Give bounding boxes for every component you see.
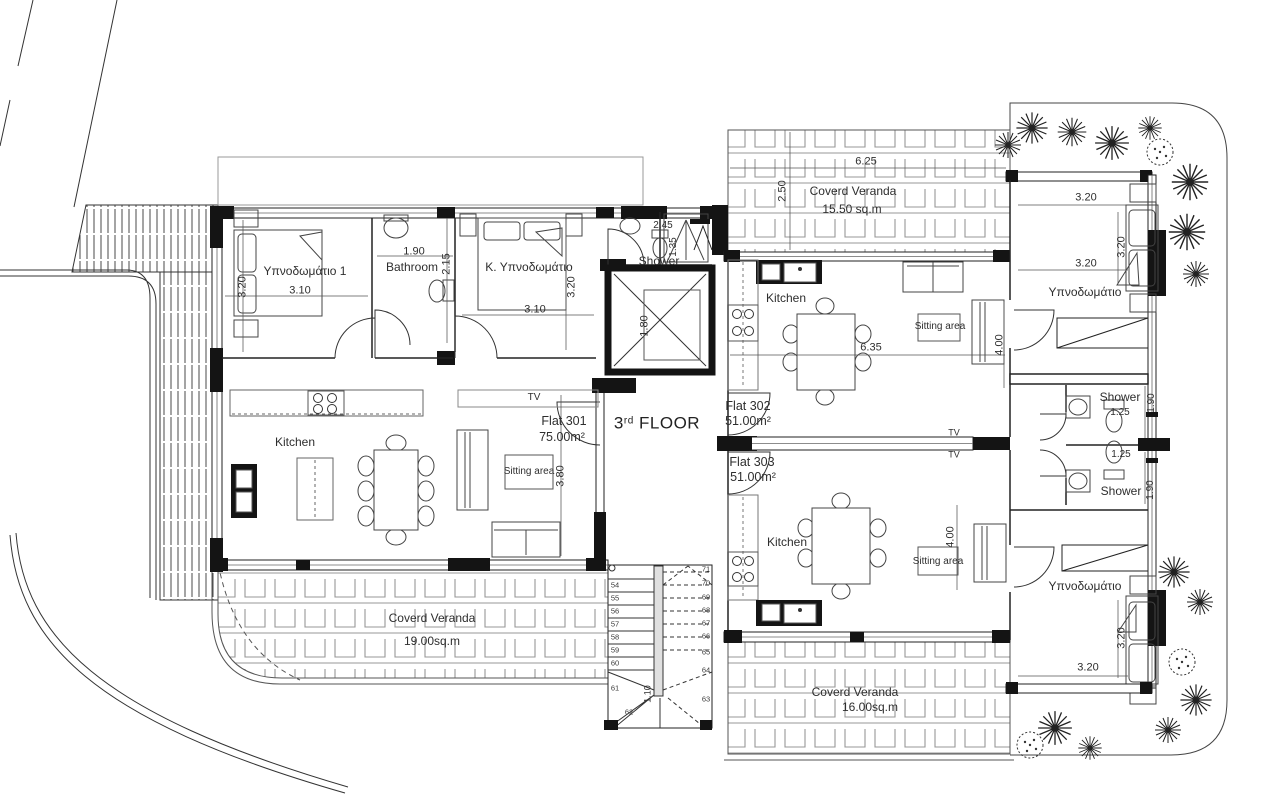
dim-flat302-shower-height: 1.90 <box>1147 393 1157 412</box>
label-flat302-bedroom: Υπνοδωμάτιο <box>1049 286 1122 298</box>
dim-flat301-living-height: 3.80 <box>556 465 567 486</box>
stair-step-number: 61 <box>611 684 619 692</box>
stair-step-number: 67 <box>702 619 710 627</box>
label-flat301-master-bedroom: Κ. Υπνοδωμάτιο <box>485 261 572 273</box>
label-flat302-sitting-area: Sitting area <box>915 322 966 332</box>
stair-step-number: 69 <box>702 593 710 601</box>
dim-flat301-shower-width: 2.45 <box>653 221 672 231</box>
stair-step-number: 60 <box>611 659 619 667</box>
label-flat301-shower: Shower <box>639 255 680 267</box>
stair-step-number: 65 <box>702 648 710 656</box>
stair-step-number: 63 <box>702 695 710 703</box>
label-flat303-tv: TV <box>948 451 960 460</box>
label-veranda-left-area: 19.00sq.m <box>404 635 460 647</box>
label-flat301-name: Flat 301 <box>541 415 586 428</box>
dim-veranda-top-depth: 2.50 <box>778 180 789 201</box>
dim-flat301-bedroom1-width: 3.10 <box>289 286 310 297</box>
dim-flat301-bathroom-width: 1.90 <box>403 247 424 258</box>
dim-flat303-bedroom-width: 3.20 <box>1077 663 1098 674</box>
label-veranda-top: Coverd Veranda <box>810 185 897 197</box>
label-flat302-tv: TV <box>948 429 960 438</box>
floor-plan-drawing <box>0 0 1272 795</box>
floor-plan-canvas: Υπνοδωμάτιο 1 3.10 3.20 Bathroom 1.90 2.… <box>0 0 1272 795</box>
stair-step-number: 66 <box>702 632 710 640</box>
stair-step-number: 71 <box>702 565 710 573</box>
dim-flat302-living-width: 6.35 <box>860 343 881 354</box>
stair-step-number: 64 <box>702 666 710 674</box>
dim-elevator-depth: 1.80 <box>640 315 651 336</box>
label-flat301-kitchen: Kitchen <box>275 436 315 448</box>
label-flat303-sitting-area: Sitting area <box>913 557 964 567</box>
dim-flat302-living-height: 4.00 <box>995 334 1006 355</box>
label-flat301-bathroom: Bathroom <box>386 261 438 273</box>
label-flat302-area: 51.00m² <box>725 415 771 428</box>
stair-step-number: 56 <box>611 607 619 615</box>
label-flat301-area: 75.00m² <box>539 431 585 444</box>
dim-flat301-master-width: 3.10 <box>524 305 545 316</box>
label-flat303-kitchen: Kitchen <box>767 536 807 548</box>
dim-flat301-shower-height: 1.35 <box>669 237 679 256</box>
floor-title: 3rd FLOOR <box>614 415 700 432</box>
label-flat301-sitting-area: Sitting area <box>504 467 555 477</box>
dim-veranda-top-width: 6.25 <box>855 157 876 168</box>
label-flat302-kitchen: Kitchen <box>766 292 806 304</box>
label-flat303-bedroom: Υπνοδωμάτιο <box>1049 580 1122 592</box>
label-flat301-bedroom1: Υπνοδωμάτιο 1 <box>264 265 347 277</box>
dim-flat302-bedroom-width2: 3.20 <box>1075 259 1096 270</box>
stair-step-number: 59 <box>611 646 619 654</box>
dim-flat301-bathroom-height: 2.15 <box>442 253 453 274</box>
dim-flat301-master-height: 3.20 <box>567 276 578 297</box>
dim-flat303-bedroom-height: 3.20 <box>1117 627 1128 648</box>
label-veranda-left: Coverd Veranda <box>389 612 476 624</box>
label-flat302-name: Flat 302 <box>725 400 770 413</box>
stair-step-number: 55 <box>611 594 619 602</box>
dim-flat303-shower-width: 1.25 <box>1111 450 1130 460</box>
label-flat303-name: Flat 303 <box>729 456 774 469</box>
dim-stair-width: 1.10 <box>644 685 653 703</box>
label-veranda-bottom-area: 16.00sq.m <box>842 701 898 713</box>
dim-flat303-shower-height: 1.90 <box>1146 480 1156 499</box>
label-veranda-top-area: 15.50 sq.m <box>822 203 881 215</box>
dim-flat303-living-height: 4.00 <box>946 526 957 547</box>
stair-step-number: 62 <box>625 708 633 716</box>
dim-flat302-bedroom-width: 3.20 <box>1075 193 1096 204</box>
label-veranda-bottom: Coverd Veranda <box>812 686 899 698</box>
label-flat303-shower: Shower <box>1101 485 1142 497</box>
label-flat303-area: 51.00m² <box>730 471 776 484</box>
floor-ordinal: rd <box>624 416 634 427</box>
dim-flat302-bedroom-height: 3.20 <box>1117 236 1128 257</box>
stair-step-number: 58 <box>611 633 619 641</box>
label-flat302-shower: Shower <box>1100 391 1141 403</box>
stair-step-number: 54 <box>611 581 619 589</box>
floor-number: 3 <box>614 414 624 433</box>
stair-step-number: 70 <box>702 579 710 587</box>
floor-word: FLOOR <box>639 414 700 433</box>
label-flat301-tv: TV <box>528 393 541 403</box>
stair-step-number: 57 <box>611 620 619 628</box>
dim-flat302-shower-width: 1.25 <box>1110 408 1129 418</box>
dim-flat301-bedroom1-height: 3.20 <box>238 276 249 297</box>
stair-step-number: 68 <box>702 606 710 614</box>
